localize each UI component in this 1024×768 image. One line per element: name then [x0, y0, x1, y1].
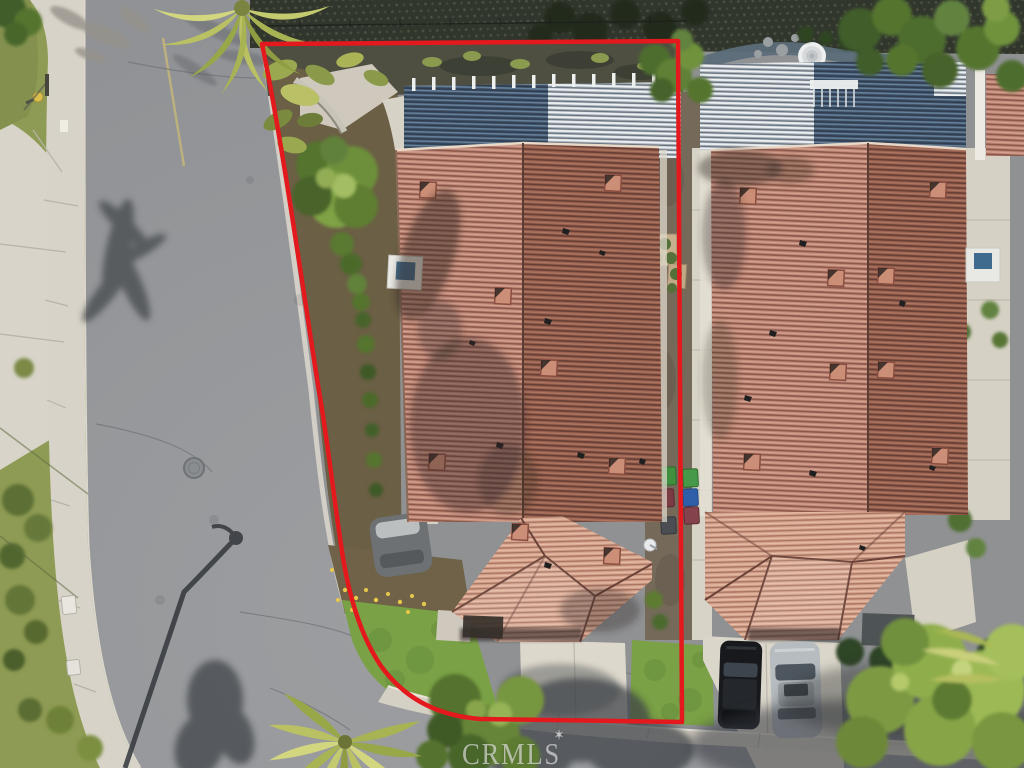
neighbor-skylight [966, 248, 1000, 282]
utility-box [61, 595, 77, 614]
pergola-bright-half [700, 62, 814, 150]
utility-box-2 [66, 659, 80, 675]
subject-roof-east-face [523, 143, 662, 522]
curb-marker [60, 120, 68, 132]
aerial-photo-screenshot: CRMLS ✶ [0, 0, 1024, 768]
sparkle-icon: ✶ [554, 726, 565, 745]
third-building-eave [975, 70, 985, 160]
neighbor-roof-east-face [868, 143, 968, 515]
aerial-photo [0, 0, 1024, 768]
neighbor-garage-eave-shadow [748, 628, 840, 641]
manhole-cover [184, 458, 204, 478]
garage-side-door-shadow [463, 615, 504, 638]
mls-watermark: CRMLS ✶ [462, 736, 561, 768]
palm-crown-center-top [234, 0, 250, 16]
palm-crown-center [338, 735, 352, 749]
mls-watermark-text: CRMLS [462, 736, 561, 768]
